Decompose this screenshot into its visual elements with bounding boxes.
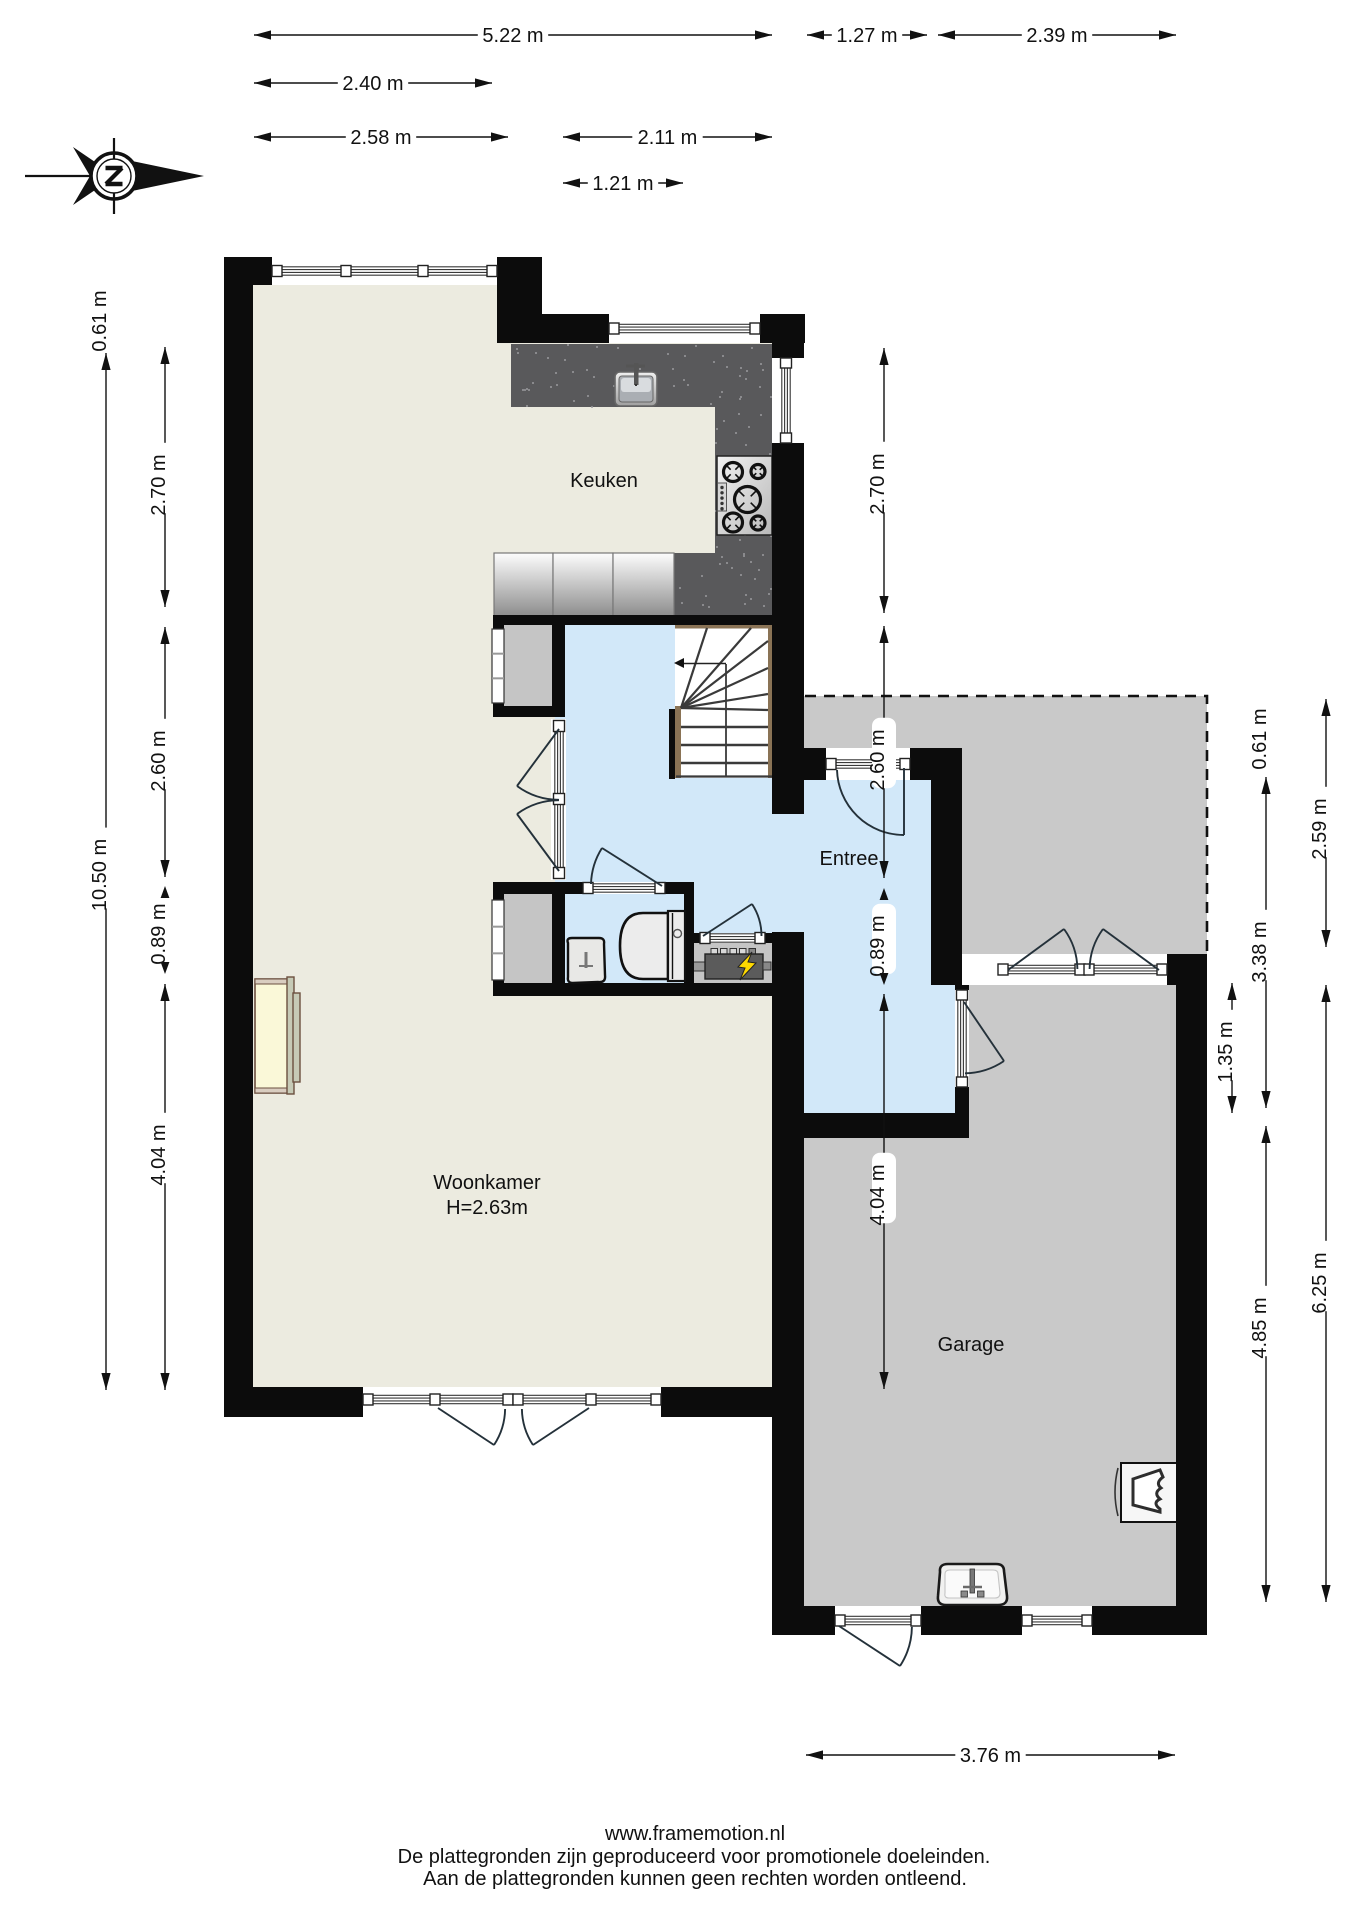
svg-text:1.35 m: 1.35 m — [1215, 1021, 1237, 1082]
svg-text:2.40 m: 2.40 m — [342, 73, 403, 95]
svg-text:4.85 m: 4.85 m — [1249, 1297, 1271, 1358]
svg-text:2.60 m: 2.60 m — [148, 730, 170, 791]
svg-text:De plattegronden zijn geproduc: De plattegronden zijn geproduceerd voor … — [398, 1846, 991, 1868]
svg-text:4.04 m: 4.04 m — [867, 1164, 889, 1225]
svg-text:H=2.63m: H=2.63m — [446, 1197, 528, 1219]
svg-text:4.04 m: 4.04 m — [148, 1124, 170, 1185]
svg-text:3.76 m: 3.76 m — [960, 1745, 1021, 1767]
svg-text:Garage: Garage — [938, 1334, 1005, 1356]
svg-text:3.38 m: 3.38 m — [1249, 921, 1271, 982]
svg-text:Keuken: Keuken — [570, 470, 638, 492]
svg-text:6.25 m: 6.25 m — [1309, 1252, 1331, 1313]
svg-text:0.89 m: 0.89 m — [867, 915, 889, 976]
svg-text:1.21 m: 1.21 m — [592, 173, 653, 195]
svg-text:2.59 m: 2.59 m — [1309, 798, 1331, 859]
svg-text:0.61 m: 0.61 m — [1249, 708, 1271, 769]
svg-text:2.58 m: 2.58 m — [350, 127, 411, 149]
svg-text:2.70 m: 2.70 m — [867, 453, 889, 514]
svg-text:Aan de plattegronden kunnen ge: Aan de plattegronden kunnen geen rechten… — [423, 1868, 967, 1890]
svg-text:Entree: Entree — [820, 848, 879, 870]
svg-text:2.11 m: 2.11 m — [638, 127, 698, 149]
svg-text:www.framemotion.nl: www.framemotion.nl — [604, 1823, 785, 1845]
svg-text:2.60 m: 2.60 m — [867, 729, 889, 790]
svg-text:10.50 m: 10.50 m — [89, 839, 111, 911]
svg-text:5.22 m: 5.22 m — [482, 25, 543, 47]
svg-text:1.27 m: 1.27 m — [836, 25, 897, 47]
svg-text:0.61 m: 0.61 m — [89, 290, 111, 351]
svg-text:Woonkamer: Woonkamer — [433, 1172, 541, 1194]
svg-text:2.70 m: 2.70 m — [148, 454, 170, 515]
svg-text:2.39 m: 2.39 m — [1026, 25, 1087, 47]
svg-text:0.89 m: 0.89 m — [148, 903, 170, 964]
